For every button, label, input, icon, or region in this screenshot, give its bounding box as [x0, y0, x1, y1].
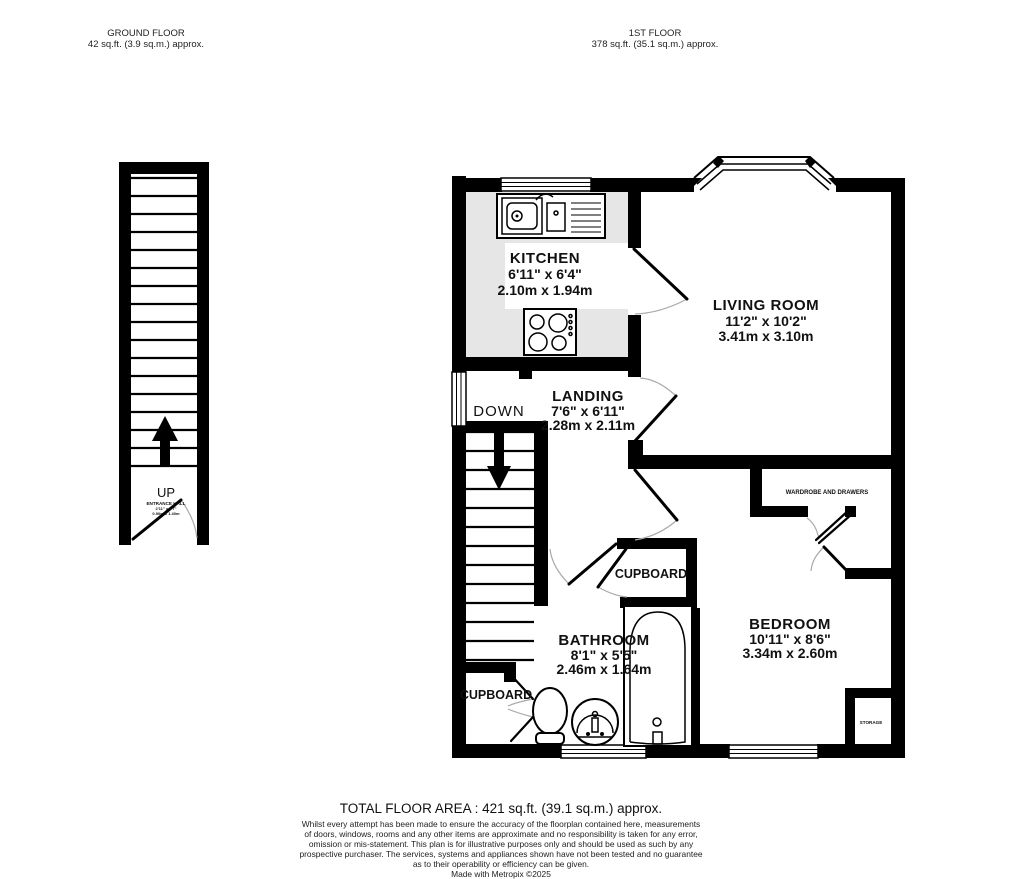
bay-window: [688, 156, 842, 192]
ground-floor-plan: UP ENTRANCE HALL 2'11" x 4'7" 0.90m x 1.…: [119, 162, 209, 545]
living-room-label: LIVING ROOM: [713, 297, 819, 314]
disclaimer-line-5: as to their operability or efficiency ca…: [413, 859, 589, 869]
total-floor-area: TOTAL FLOOR AREA : 421 sq.ft. (39.1 sq.m…: [340, 801, 662, 816]
first-floor-area: 378 sq.ft. (35.1 sq.m.) approx.: [592, 39, 719, 50]
landing-dims-metric: 2.28m x 2.11m: [541, 417, 635, 433]
disclaimer-line-3: omission or mis-statement. This plan is …: [309, 839, 694, 849]
up-arrow: [152, 416, 178, 467]
down-label: DOWN: [473, 403, 525, 420]
first-floor-stairs: [466, 432, 534, 660]
disclaimer-line-1: Whilst every attempt has been made to en…: [302, 819, 701, 829]
living-room-door: [635, 378, 676, 441]
floorplan-drawing: GROUND FLOOR 42 sq.ft. (3.9 sq.m.) appro…: [0, 0, 1024, 879]
living-room-dims-metric: 3.41m x 3.10m: [719, 328, 814, 344]
first-floor-plan: KITCHEN 6'11" x 6'4" 2.10m x 1.94m LIVIN…: [452, 156, 905, 758]
wardrobe-label: WARDROBE AND DRAWERS: [786, 490, 868, 496]
kitchen-window: [501, 178, 591, 191]
living-room-dims-imperial: 11'2" x 10'2": [725, 313, 806, 329]
basin: [572, 699, 618, 745]
entrance-hall-metric: 0.90m x 1.40m: [152, 511, 180, 516]
kitchen-dims-imperial: 6'11" x 6'4": [508, 266, 582, 282]
cupboard-label: CUPBOARD: [615, 567, 687, 581]
bedroom-window: [729, 745, 818, 758]
storage-label: STORAGE: [860, 720, 883, 725]
ground-floor-title: GROUND FLOOR: [107, 28, 185, 39]
first-floor-title: 1ST FLOOR: [629, 28, 682, 39]
bedroom-door: [635, 470, 677, 540]
kitchen-door: [634, 249, 687, 314]
floor-headers: GROUND FLOOR 42 sq.ft. (3.9 sq.m.) appro…: [88, 28, 718, 50]
under-stairs-cupboard-label: CUPBOARD: [460, 688, 532, 702]
bathroom-dims-metric: 2.46m x 1.64m: [557, 661, 652, 677]
kitchen-sink: [497, 194, 605, 238]
bedroom-dims-metric: 3.34m x 2.60m: [743, 645, 838, 661]
up-label: UP: [157, 485, 175, 500]
kitchen-label: KITCHEN: [510, 250, 580, 267]
footer: TOTAL FLOOR AREA : 421 sq.ft. (39.1 sq.m…: [299, 801, 702, 879]
floorplan-canvas: GROUND FLOOR 42 sq.ft. (3.9 sq.m.) appro…: [0, 0, 1024, 879]
kitchen-hob: [524, 309, 576, 355]
wardrobe-doors: [807, 510, 852, 572]
down-arrow: [487, 433, 511, 490]
disclaimer-line-4: prospective purchaser. The services, sys…: [299, 849, 702, 859]
disclaimer-line-2: of doors, windows, rooms and any other i…: [304, 829, 697, 839]
metropix-credit: Made with Metropix ©2025: [451, 869, 551, 879]
kitchen-dims-metric: 2.10m x 1.94m: [498, 282, 593, 298]
ground-floor-area: 42 sq.ft. (3.9 sq.m.) approx.: [88, 39, 204, 50]
under-stairs-cupboard-doors: [508, 675, 533, 741]
toilet: [533, 688, 567, 744]
landing-window: [452, 372, 466, 426]
